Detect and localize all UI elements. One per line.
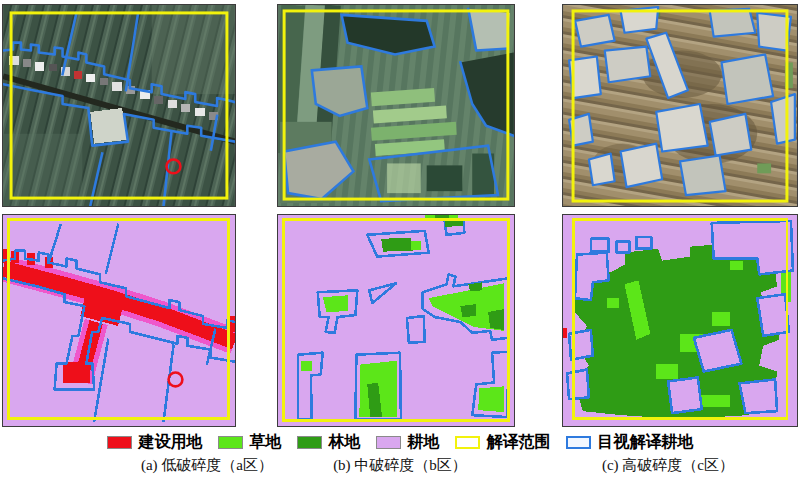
legend-item-cropland: 耕地 <box>376 432 440 453</box>
grassland-swatch-icon <box>218 436 243 449</box>
satellite-a-graphic <box>3 5 235 206</box>
visual-interpreted-cropland-swatch-icon <box>566 436 591 449</box>
panel-a-satellite-image <box>2 4 236 207</box>
map-b-graphic <box>278 215 514 426</box>
legend-label: 建设用地 <box>139 432 203 453</box>
caption-b: (b) 中破碎度（b区） <box>280 456 520 475</box>
satellite-b-graphic <box>278 5 514 206</box>
legend-label: 解译范围 <box>487 432 551 453</box>
legend-item-forest: 林地 <box>297 432 361 453</box>
legend-item-visual-interpreted-cropland: 目视解译耕地 <box>566 432 694 453</box>
legend-label: 林地 <box>329 432 361 453</box>
satellite-c-graphic <box>563 5 797 206</box>
construction-land-swatch-icon <box>107 436 132 449</box>
panel-a-classification-map <box>2 214 236 427</box>
legend-item-construction: 建设用地 <box>107 432 203 453</box>
map-a-graphic <box>3 215 235 426</box>
panel-c-satellite-image <box>562 4 798 207</box>
legend-item-interpretation-extent: 解译范围 <box>455 432 551 453</box>
caption-c: (c) 高破碎度（c区） <box>548 456 788 475</box>
figure: 建设用地 草地 林地 耕地 解译范围 目视解译耕地 (a) 低破碎度（a区） (… <box>0 0 800 481</box>
cropland-swatch-icon <box>376 436 401 449</box>
legend-label: 草地 <box>250 432 282 453</box>
panel-b-classification-map <box>277 214 515 427</box>
legend-item-grassland: 草地 <box>218 432 282 453</box>
legend-label: 目视解译耕地 <box>598 432 694 453</box>
panel-b-satellite-image <box>277 4 515 207</box>
panel-c-classification-map <box>562 214 798 427</box>
legend-label: 耕地 <box>408 432 440 453</box>
legend: 建设用地 草地 林地 耕地 解译范围 目视解译耕地 <box>0 431 800 453</box>
map-c-graphic <box>563 215 797 426</box>
forest-swatch-icon <box>297 436 322 449</box>
interpretation-extent-swatch-icon <box>455 436 480 449</box>
